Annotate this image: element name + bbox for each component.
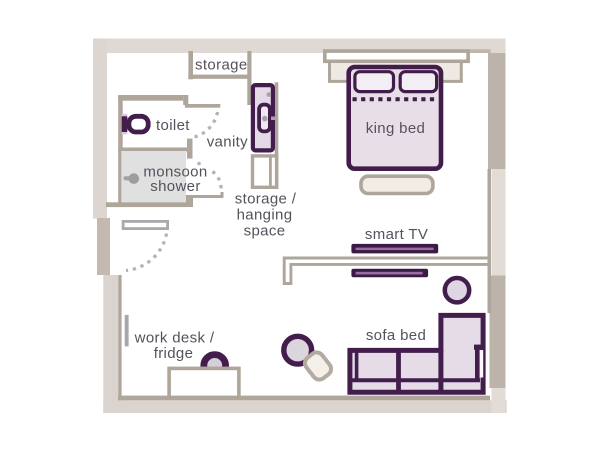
svg-text:hanging: hanging — [237, 207, 293, 224]
svg-text:smart TV: smart TV — [365, 226, 428, 243]
svg-text:fridge: fridge — [154, 345, 194, 362]
svg-text:space: space — [244, 223, 286, 240]
svg-text:sofa bed: sofa bed — [366, 327, 426, 344]
svg-text:king bed: king bed — [366, 120, 426, 137]
svg-text:storage: storage — [195, 57, 247, 74]
svg-text:work desk /: work desk / — [134, 330, 215, 347]
svg-text:toilet: toilet — [156, 117, 190, 134]
svg-text:shower: shower — [150, 178, 200, 195]
svg-text:storage /: storage / — [235, 191, 297, 208]
svg-text:vanity: vanity — [207, 134, 248, 151]
